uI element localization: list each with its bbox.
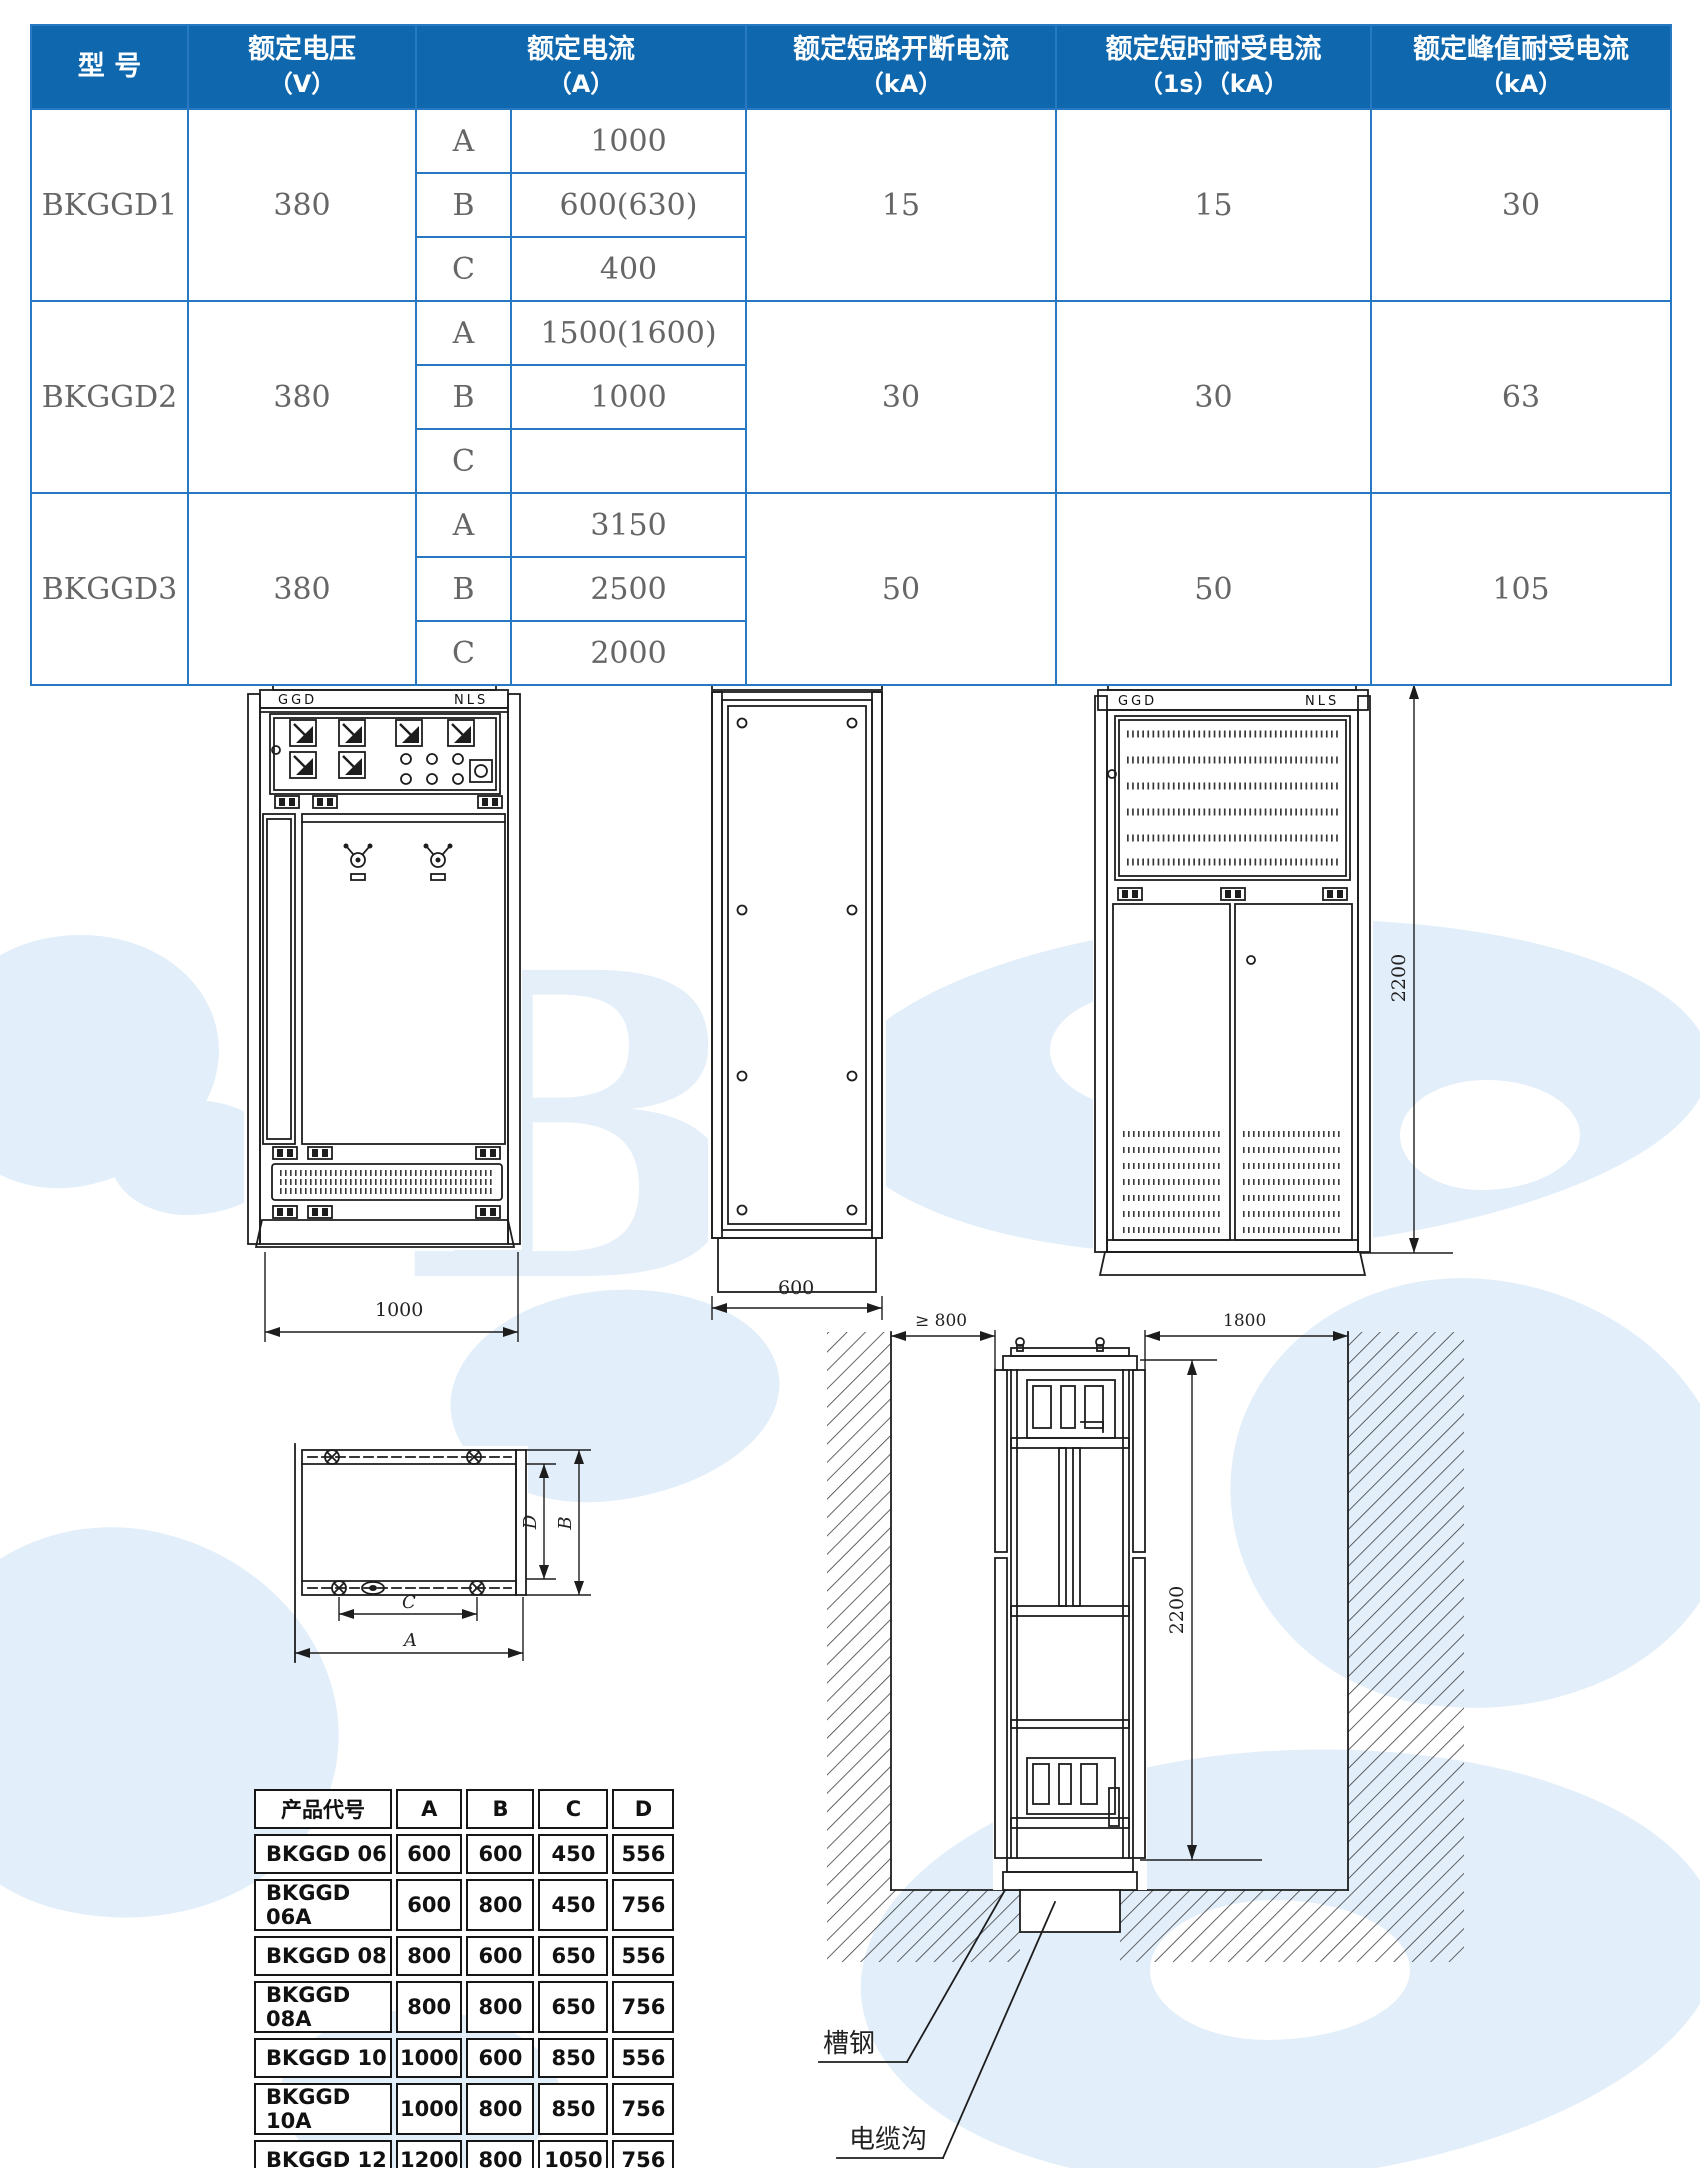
- product-code: BKGGD 10A: [254, 2083, 392, 2135]
- peak-cell: 105: [1371, 493, 1671, 685]
- dim-col-b: B: [466, 1789, 534, 1829]
- current-cell: 1000: [511, 109, 746, 173]
- current-cell: 2000: [511, 621, 746, 685]
- plan-dim-a-label: A: [402, 1630, 417, 1651]
- dim-c: 450: [538, 1879, 608, 1931]
- product-code: BKGGD 06: [254, 1834, 392, 1874]
- installation-drawing: ≥ 800 1800 2200 槽钢 电缆沟: [815, 1290, 1475, 2168]
- dim-b: 800: [466, 1981, 534, 2033]
- product-code: BKGGD 08: [254, 1936, 392, 1976]
- dim-b: 800: [466, 2140, 534, 2168]
- dim-col-product: 产品代号: [254, 1789, 392, 1829]
- install-right-gap-label: 1800: [1223, 1311, 1266, 1331]
- plan-dim-b-label: B: [555, 1516, 576, 1530]
- front-width-label: 1000: [375, 1299, 423, 1321]
- table-row: BKGGD 08A 800 800 650 756: [254, 1981, 674, 2033]
- rear-brand-right: NLS: [1305, 694, 1339, 709]
- dim-b: 600: [466, 1834, 534, 1874]
- table-row: BKGGD 10 1000 600 850 556: [254, 2038, 674, 2078]
- channel-steel-label: 槽钢: [823, 2029, 875, 2059]
- dim-d: 556: [612, 2038, 674, 2078]
- dim-c: 650: [538, 1981, 608, 2033]
- dim-a: 1000: [396, 2038, 462, 2078]
- dim-a: 800: [396, 1936, 462, 1976]
- class-cell: B: [416, 365, 511, 429]
- class-cell: C: [416, 621, 511, 685]
- class-cell: A: [416, 301, 511, 365]
- front-brand-left: GGD: [278, 693, 317, 708]
- col-current: 额定电流（A）: [416, 25, 746, 109]
- side-width-label: 600: [778, 1277, 814, 1299]
- model-cell: BKGGD3: [31, 493, 188, 685]
- breaking-cell: 30: [746, 301, 1056, 493]
- class-cell: B: [416, 173, 511, 237]
- dim-d: 756: [612, 1981, 674, 2033]
- col-model: 型 号: [31, 25, 188, 109]
- table-row: BKGGD3 380 A 3150 50 50 105: [31, 493, 1671, 557]
- dim-d: 756: [612, 2140, 674, 2168]
- table-row: BKGGD 08 800 600 650 556: [254, 1936, 674, 1976]
- dim-a: 600: [396, 1834, 462, 1874]
- plan-view-drawing: D B C A: [278, 1420, 608, 1680]
- peak-cell: 30: [1371, 109, 1671, 301]
- catalog-page: B 型 号 额定电压（V） 额定电流（A） 额定短路开断电流（kA） 额定短时耐…: [0, 0, 1700, 2168]
- dim-b: 600: [466, 2038, 534, 2078]
- product-code: BKGGD 06A: [254, 1879, 392, 1931]
- side-view-drawing: 600: [692, 648, 902, 1348]
- product-code: BKGGD 08A: [254, 1981, 392, 2033]
- current-cell: 600(630): [511, 173, 746, 237]
- dim-b: 600: [466, 1936, 534, 1976]
- dimension-table: 产品代号 A B C D BKGGD 06 600 600 450 556 BK…: [250, 1784, 678, 2168]
- dim-col-d: D: [612, 1789, 674, 1829]
- front-view-drawing: GGD NLS: [238, 648, 558, 1348]
- current-cell: 1500(1600): [511, 301, 746, 365]
- install-height-dimension: [1140, 1360, 1262, 1860]
- withstand-cell: 30: [1056, 301, 1371, 493]
- front-brand-right: NLS: [454, 693, 488, 708]
- product-code: BKGGD 10: [254, 2038, 392, 2078]
- class-cell: C: [416, 429, 511, 493]
- product-code: BKGGD 12: [254, 2140, 392, 2168]
- install-channel-beam: [1020, 1890, 1120, 1932]
- dim-d: 556: [612, 1834, 674, 1874]
- table-row: BKGGD1 380 A 1000 15 15 30: [31, 109, 1671, 173]
- install-left-gap-label: ≥ 800: [915, 1311, 967, 1331]
- rear-height-label: 2200: [1388, 954, 1410, 1002]
- current-cell: 3150: [511, 493, 746, 557]
- col-voltage: 额定电压（V）: [188, 25, 416, 109]
- col-peak: 额定峰值耐受电流（kA）: [1371, 25, 1671, 109]
- dim-d: 756: [612, 2083, 674, 2135]
- withstand-cell: 50: [1056, 493, 1371, 685]
- voltage-cell: 380: [188, 301, 416, 493]
- model-cell: BKGGD2: [31, 301, 188, 493]
- dim-d: 556: [612, 1936, 674, 1976]
- plan-dim-d-label: D: [520, 1514, 541, 1530]
- table-row: BKGGD2 380 A 1500(1600) 30 30 63: [31, 301, 1671, 365]
- table-row: BKGGD 06A 600 800 450 756: [254, 1879, 674, 1931]
- class-cell: A: [416, 109, 511, 173]
- dim-c: 1050: [538, 2140, 608, 2168]
- dim-col-c: C: [538, 1789, 608, 1829]
- rear-view-drawing: GGD NLS: [1085, 648, 1475, 1298]
- table-row: BKGGD 06 600 600 450 556: [254, 1834, 674, 1874]
- dim-a: 800: [396, 1981, 462, 2033]
- voltage-cell: 380: [188, 109, 416, 301]
- class-cell: C: [416, 237, 511, 301]
- cable-trench-label: 电缆沟: [849, 2125, 927, 2155]
- spec-header-row: 型 号 额定电压（V） 额定电流（A） 额定短路开断电流（kA） 额定短时耐受电…: [31, 25, 1671, 109]
- dim-b: 800: [466, 1879, 534, 1931]
- dim-d: 756: [612, 1879, 674, 1931]
- model-cell: BKGGD1: [31, 109, 188, 301]
- install-height-label: 2200: [1166, 1586, 1188, 1634]
- col-breaking: 额定短路开断电流（kA）: [746, 25, 1056, 109]
- current-cell: 2500: [511, 557, 746, 621]
- plan-dim-c-label: C: [402, 1592, 416, 1613]
- install-right-gap-dimension: [1145, 1330, 1348, 1370]
- dim-c: 850: [538, 2083, 608, 2135]
- class-cell: A: [416, 493, 511, 557]
- dim-a: 1000: [396, 2083, 462, 2135]
- dim-b: 800: [466, 2083, 534, 2135]
- dim-c: 450: [538, 1834, 608, 1874]
- current-cell: 1000: [511, 365, 746, 429]
- table-row: BKGGD 10A 1000 800 850 756: [254, 2083, 674, 2135]
- current-cell: 400: [511, 237, 746, 301]
- col-withstand: 额定短时耐受电流（1s）（kA）: [1056, 25, 1371, 109]
- dim-c: 650: [538, 1936, 608, 1976]
- dim-col-a: A: [396, 1789, 462, 1829]
- withstand-cell: 15: [1056, 109, 1371, 301]
- spec-table: 型 号 额定电压（V） 额定电流（A） 额定短路开断电流（kA） 额定短时耐受电…: [30, 24, 1672, 686]
- dim-a: 600: [396, 1879, 462, 1931]
- rear-brand-left: GGD: [1118, 694, 1157, 709]
- voltage-cell: 380: [188, 493, 416, 685]
- install-left-gap-dimension: [891, 1330, 995, 1370]
- table-row: BKGGD 12 1200 800 1050 756: [254, 2140, 674, 2168]
- install-floor: [827, 1890, 1464, 1962]
- peak-cell: 63: [1371, 301, 1671, 493]
- dim-a: 1200: [396, 2140, 462, 2168]
- dimension-header-row: 产品代号 A B C D: [254, 1789, 674, 1829]
- class-cell: B: [416, 557, 511, 621]
- breaking-cell: 50: [746, 493, 1056, 685]
- front-width-dimension: [265, 1252, 518, 1342]
- dim-c: 850: [538, 2038, 608, 2078]
- current-cell: [511, 429, 746, 493]
- breaking-cell: 15: [746, 109, 1056, 301]
